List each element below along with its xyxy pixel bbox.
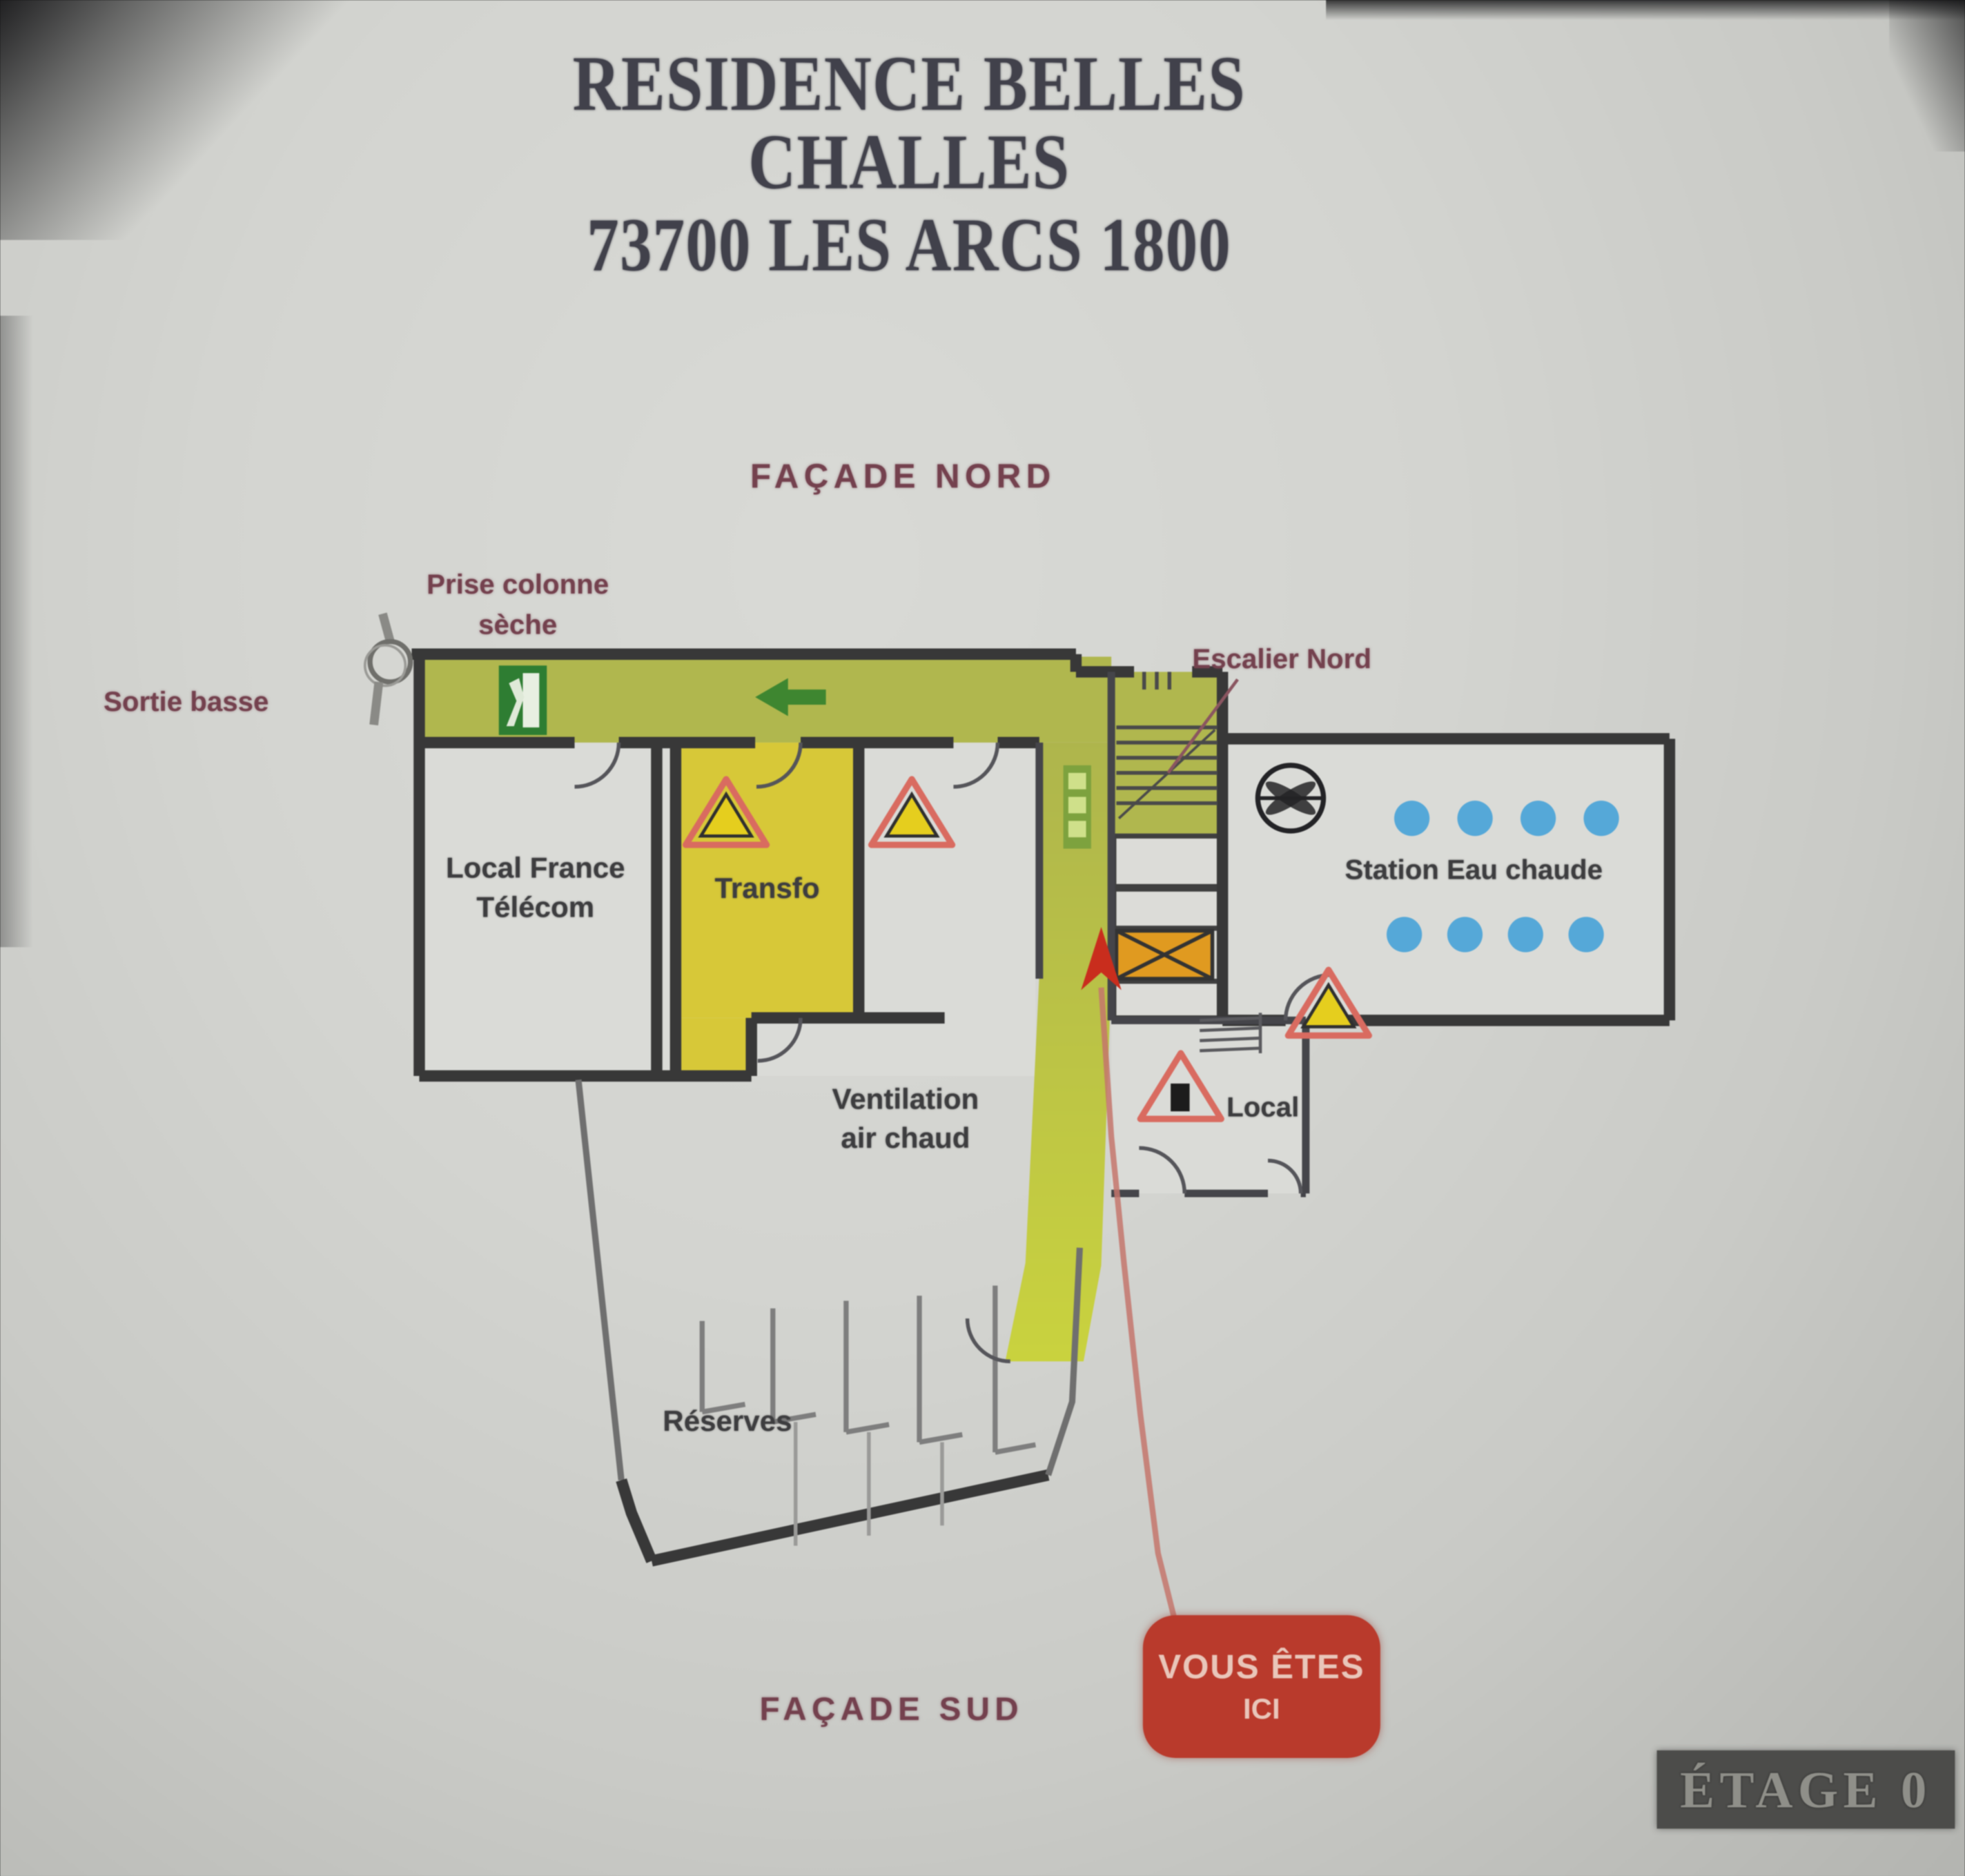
you-are-here-line2: ICI: [1243, 1692, 1280, 1726]
facade-sud-label: FAÇADE SUD: [702, 1690, 1081, 1729]
ventilation-line1: Ventilation: [781, 1079, 1030, 1119]
local-label: Local: [1202, 1088, 1324, 1126]
prise-colonne-seche-label: Prise colonne sèche: [404, 565, 632, 645]
station-eau-chaude-label: Station Eau chaude: [1317, 851, 1630, 888]
prise-colonne-line2: sèche: [404, 605, 632, 645]
sortie-basse-label: Sortie basse: [104, 682, 306, 722]
lft-line2: Télécom: [416, 888, 656, 927]
shaft-box: [1114, 889, 1220, 928]
photo-of-floor-plan-sign: RESIDENCE BELLES CHALLES 73700 LES ARCS …: [0, 0, 1965, 1876]
lft-line1: Local France: [416, 849, 656, 888]
door-icon: [968, 1318, 1010, 1361]
prise-colonne-line1: Prise colonne: [404, 565, 632, 605]
you-are-here-line1: VOUS ÊTES: [1158, 1648, 1365, 1687]
reserves-label: Réserves: [641, 1402, 813, 1441]
orange-hatched-box-icon: [1116, 930, 1212, 979]
facade-nord-label: FAÇADE NORD: [707, 457, 1099, 496]
escalier-nord-label: Escalier Nord: [1175, 639, 1389, 679]
floor-badge-text: ÉTAGE 0: [1680, 1759, 1932, 1820]
floor-badge: ÉTAGE 0: [1657, 1750, 1955, 1828]
exit-running-man-icon: [499, 665, 547, 735]
local-france-telecom-label: Local France Télécom: [416, 849, 656, 928]
transfo-label: Transfo: [682, 869, 852, 908]
service-shaft-boxes: [1114, 836, 1220, 1017]
floor-plan: [0, 0, 1965, 1876]
transfo-fill-lower: [676, 1018, 752, 1076]
green-exit-panel-icon: [1064, 765, 1091, 849]
wall-reserves-bottom: [621, 1475, 1048, 1561]
shaft-box: [1114, 981, 1220, 1018]
wall-reserves-left: [578, 1079, 621, 1480]
ventilation-label: Ventilation air chaud: [781, 1079, 1030, 1158]
sign-board: RESIDENCE BELLES CHALLES 73700 LES ARCS …: [0, 0, 1965, 1876]
shaft-box: [1114, 836, 1220, 886]
ventilation-line2: air chaud: [781, 1119, 1030, 1158]
you-are-here-box: VOUS ÊTES ICI: [1143, 1615, 1380, 1758]
